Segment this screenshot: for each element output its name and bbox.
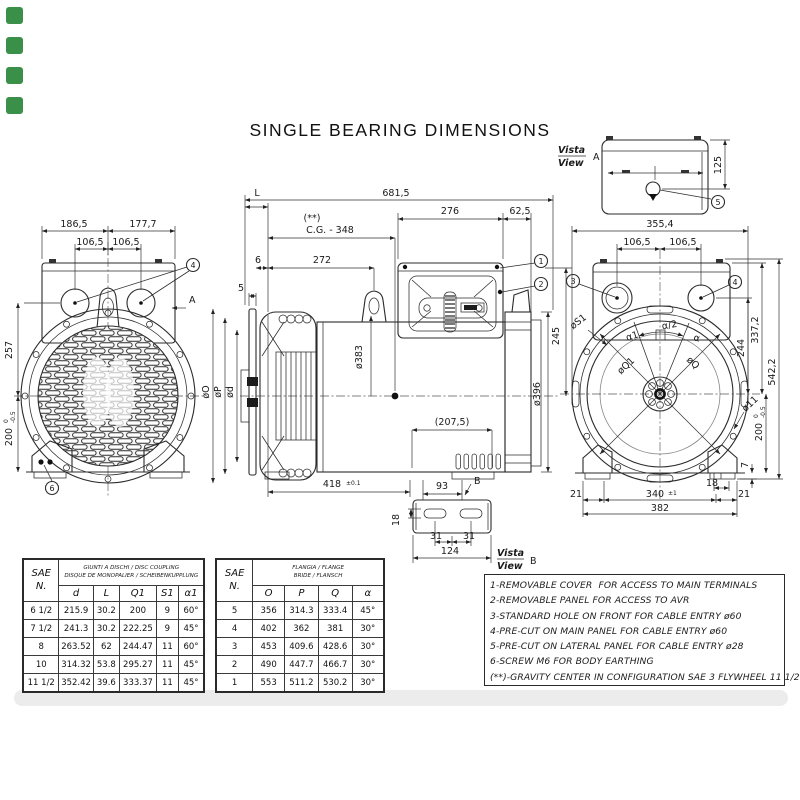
dim-side-6: 6 [255,255,261,266]
table-row: 11 1/2352.4239.6333.371145° [23,674,204,693]
col-Q1: Q1 [120,586,157,602]
coupling-table: SAEN. GIUNTI A DISCHI / DISC COUPLINGDIS… [22,558,205,693]
view-b-label: View [497,561,523,572]
section-letter-a: A [189,295,196,306]
note-line: 4-PRE-CUT ON MAIN PANEL FOR CABLE ENTRY … [490,624,784,639]
dim-dia-396: ø396 [532,382,543,406]
svg-text:200: 200 [4,428,15,446]
col-S1: S1 [156,586,178,602]
fan-grille [36,324,182,470]
dim-dia-383: ø383 [354,345,365,369]
page-title: SINGLE BEARING DIMENSIONS [0,120,800,141]
svg-text:0: 0 [3,419,10,423]
dim-rear-21r: 21 [738,489,750,500]
col-a: α [352,586,384,602]
col-Q: Q [318,586,352,602]
green-marker [6,97,23,114]
dim-bracket-124: 124 [441,546,459,557]
green-marker [6,7,23,24]
col-P: P [284,586,318,602]
top-view-a: Vista View A 5 125 [558,136,730,214]
dim-rear-7: 7 [740,462,751,468]
dim-dia-O: øO [201,385,212,398]
dim-bracket-18: 18 [391,514,402,526]
callout-1: 1 [538,257,543,266]
detail-letter-b: B [474,476,481,487]
col-d: d [59,586,93,602]
dim-dia-S1: øS1 [568,312,589,332]
dim-front-width-left: 186,5 [60,219,87,230]
view-a-letter: A [593,152,600,163]
view-a-label: View [558,158,584,169]
note-line: 6-SCREW M6 FOR BODY EARTHING [490,654,784,669]
dim-rear-200: 200 0 -0.5 [753,406,767,441]
coupling-header: GIUNTI A DISCHI / DISC COUPLINGDISQUE DE… [59,559,204,586]
dim-side-2075: (207,5) [435,417,470,428]
dim-rear-hole-right: 106,5 [669,237,696,248]
dim-rear-hole-left: 106,5 [623,237,650,248]
angle-alpha-half: α/2 [661,319,678,333]
dim-rear-21l: 21 [570,489,582,500]
dim-side-625: 62,5 [509,206,530,217]
dim-side-418-tol: ±0.1 [346,480,361,487]
dim-rear-340-tol: ±1 [668,490,677,497]
table-row: SAEN. FLANGIA / FLANGEBRIDE / FLANSCH [216,559,384,586]
dim-bracket-31l: 31 [430,531,442,542]
col-O: O [253,586,285,602]
flange-table: SAEN. FLANGIA / FLANGEBRIDE / FLANSCH O … [215,558,385,693]
rear-view: øQ1 øQ α1 α/2 α øS1 [560,219,783,517]
dim-rear-340: 340 [646,489,664,500]
svg-text:200: 200 [754,423,765,441]
dim-dia-11: ø11 [740,394,761,414]
sae-header: SAEN. [23,559,59,602]
note-line: 1-REMOVABLE COVER FOR ACCESS TO MAIN TER… [490,578,784,593]
dim-front-width-right: 177,7 [129,219,156,230]
dim-side-272: 272 [313,255,331,266]
table-row: 7 1/2241.330.2222.25945° [23,620,204,638]
table-row: 3453409.6428.630° [216,638,384,656]
svg-text:-0.5: -0.5 [760,406,767,418]
green-marker [6,67,23,84]
callout-4: 4 [190,261,195,270]
vent-louvres [456,454,501,469]
note-line: 2-REMOVABLE PANEL FOR ACCESS TO AVR [490,593,784,608]
dim-rear-3372: 337,2 [750,316,761,343]
callout-3: 3 [570,277,575,286]
dim-dia-d: ød [225,386,236,398]
flange-header: FLANGIA / FLANGEBRIDE / FLANSCH [253,559,384,586]
dim-side-93: 93 [436,481,448,492]
left-edge-markers [6,7,23,114]
drawing-page: SINGLE BEARING DIMENSIONS [0,0,800,800]
angle-alpha: α [692,332,701,344]
dim-top-125: 125 [713,156,724,174]
sae-header: SAEN. [216,559,253,602]
note-line: (**)-GRAVITY CENTER IN CONFIGURATION SAE… [490,670,784,685]
dim-bracket-31r: 31 [463,531,475,542]
vista-b-label: Vista [497,548,524,559]
dim-rear-382: 382 [651,503,669,514]
coupling-diameter-dims: øO øP ød [201,309,237,483]
col-a1: α1 [178,586,204,602]
table-row: 6 1/2215.930.2200960° [23,602,204,620]
dim-side-418: 418 [323,479,341,490]
dim-front-hole-left: 106,5 [76,237,103,248]
table-row: SAEN. GIUNTI A DISCHI / DISC COUPLINGDIS… [23,559,204,586]
front-view: 186,5 177,7 106,5 106,5 257 200 0 -0.5 A [3,219,204,497]
dim-rear-244: 244 [736,339,747,357]
note-line: 3-STANDARD HOLE ON FRONT FOR CABLE ENTRY… [490,609,784,624]
dim-side-L: L [254,188,260,199]
green-marker [6,37,23,54]
view-b-letter: B [530,556,537,567]
table-row: 1553511.2530.230° [216,674,384,693]
side-view: 681,5 L 276 62,5 (**) C.G. - 348 6 272 5 [238,188,572,500]
dim-rear-5422: 542,2 [767,358,778,385]
callout-6: 6 [49,484,54,493]
table-row: 5356314.3333.445° [216,602,384,620]
callout-5: 5 [715,198,720,207]
callout-2: 2 [538,280,543,289]
dim-dia-Q1: øQ1 [615,356,637,377]
dim-dia-P: øP [213,386,224,398]
dim-rear-width: 355,4 [646,219,673,230]
dim-side-5: 5 [238,283,244,294]
dim-front-hole-right: 106,5 [112,237,139,248]
svg-text:-0.5: -0.5 [10,411,17,423]
dim-dia-Q: øQ [684,355,701,372]
note-line: 5-PRE-CUT ON LATERAL PANEL FOR CABLE ENT… [490,639,784,654]
table-row: 440236238130° [216,620,384,638]
table-row: 8263.5262244.471160° [23,638,204,656]
dim-front-257: 257 [4,341,15,359]
cg-mark: (**) [304,213,321,224]
dim-rear-18: 18 [706,478,718,489]
bracket-detail-view: 18 31 31 124 Vista View B [391,500,537,572]
notes-box: 1-REMOVABLE COVER FOR ACCESS TO MAIN TER… [484,574,785,686]
dim-side-total: 681,5 [382,188,409,199]
col-L: L [93,586,119,602]
dim-front-200: 200 0 -0.5 [3,411,17,446]
table-row: 10314.3253.8295.271145° [23,656,204,674]
svg-text:0: 0 [753,414,760,418]
callout-4: 4 [732,278,737,287]
dim-245: 245 [551,327,562,345]
table-row: 2490447.7466.730° [216,656,384,674]
vista-a-label: Vista [558,145,585,156]
dim-side-276: 276 [441,206,459,217]
cg-dim: C.G. - 348 [306,225,354,236]
